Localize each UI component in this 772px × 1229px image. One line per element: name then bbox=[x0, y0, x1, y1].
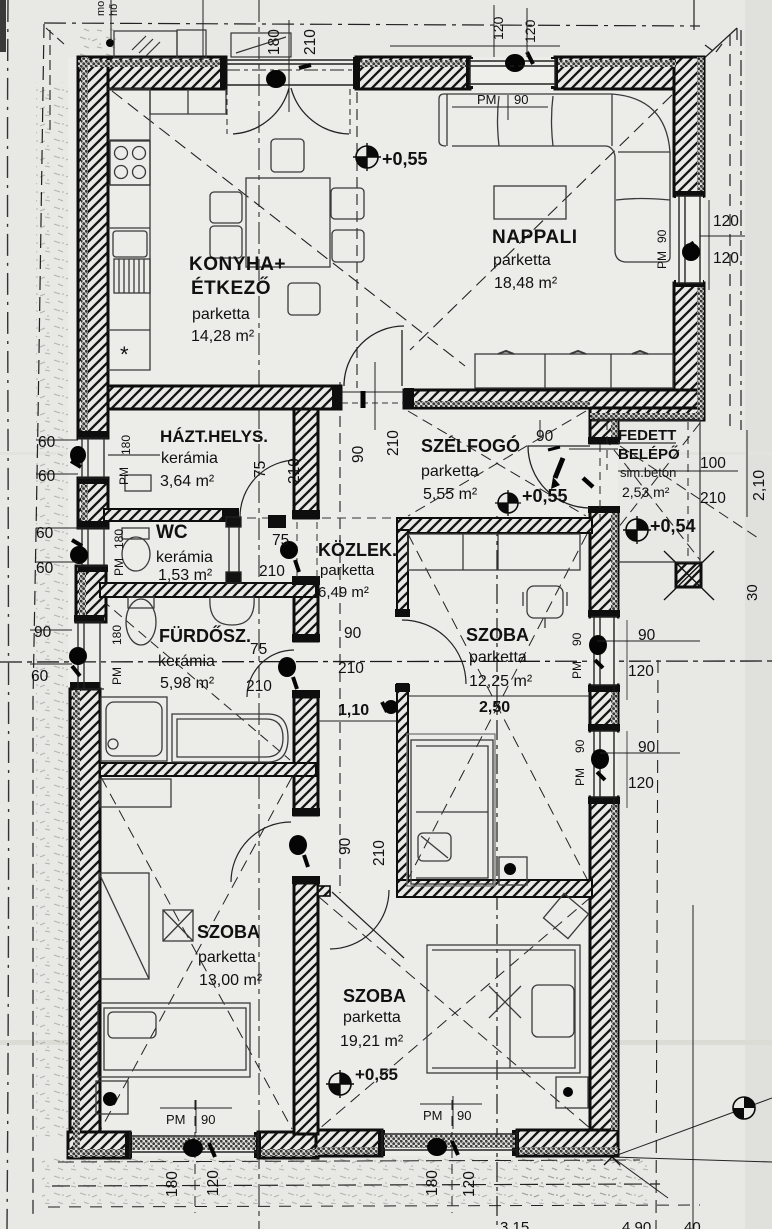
svg-text:90: 90 bbox=[655, 229, 669, 243]
svg-text:PM: PM bbox=[570, 661, 584, 679]
svg-text:SZÉLFOGÓ: SZÉLFOGÓ bbox=[421, 435, 520, 456]
svg-text:KÖZLEK.: KÖZLEK. bbox=[318, 540, 397, 560]
svg-text:1,53 m²: 1,53 m² bbox=[158, 567, 213, 584]
svg-text:FEDETT: FEDETT bbox=[618, 427, 676, 444]
svg-text:180: 180 bbox=[424, 1170, 441, 1196]
svg-text:19,21 m²: 19,21 m² bbox=[340, 1033, 404, 1050]
svg-text:SZOBA: SZOBA bbox=[343, 986, 406, 1006]
svg-text:parketta: parketta bbox=[421, 463, 479, 480]
svg-text:sim.beton: sim.beton bbox=[620, 465, 676, 480]
svg-text:75: 75 bbox=[250, 641, 267, 658]
svg-text:120: 120 bbox=[713, 250, 739, 267]
svg-text:hő: hő bbox=[108, 4, 120, 16]
svg-text:1,10: 1,10 bbox=[338, 702, 369, 719]
svg-text:3,64 m²: 3,64 m² bbox=[160, 473, 215, 490]
svg-text:180: 180 bbox=[112, 529, 126, 549]
svg-text:2,50: 2,50 bbox=[479, 699, 510, 716]
svg-text:*: * bbox=[120, 342, 129, 367]
svg-text:2,53 m²: 2,53 m² bbox=[622, 484, 670, 500]
svg-text:90: 90 bbox=[337, 837, 354, 855]
svg-text:SZOBA: SZOBA bbox=[466, 625, 529, 645]
svg-text:2,10: 2,10 bbox=[751, 470, 768, 501]
svg-text:120: 120 bbox=[713, 213, 739, 230]
svg-text:parketta: parketta bbox=[320, 562, 375, 579]
svg-text:BELÉPŐ: BELÉPŐ bbox=[618, 445, 680, 463]
svg-text:180: 180 bbox=[110, 625, 124, 645]
svg-text:5,98 m²: 5,98 m² bbox=[160, 675, 215, 692]
svg-text:100: 100 bbox=[700, 455, 726, 472]
svg-text:PM: PM bbox=[110, 667, 124, 685]
svg-text:PM: PM bbox=[477, 92, 497, 107]
svg-text:FÜRDŐSZ.: FÜRDŐSZ. bbox=[159, 625, 251, 646]
svg-text:210: 210 bbox=[700, 490, 726, 507]
svg-text:PM: PM bbox=[166, 1112, 186, 1127]
svg-text:SZOBA: SZOBA bbox=[197, 922, 260, 942]
svg-text:+0,55: +0,55 bbox=[355, 1065, 398, 1084]
svg-text:5,55 m²: 5,55 m² bbox=[423, 486, 478, 503]
svg-text:120: 120 bbox=[628, 775, 654, 792]
svg-text:90: 90 bbox=[638, 627, 656, 644]
svg-text:3,15: 3,15 bbox=[500, 1219, 529, 1229]
svg-text:ÉTKEZŐ: ÉTKEZŐ bbox=[191, 277, 271, 299]
svg-text:75: 75 bbox=[252, 461, 269, 478]
svg-text:120: 120 bbox=[490, 16, 506, 40]
svg-text:60: 60 bbox=[36, 525, 54, 542]
svg-text:90: 90 bbox=[570, 632, 584, 646]
svg-text:180: 180 bbox=[119, 435, 133, 455]
svg-text:NAPPALI: NAPPALI bbox=[492, 227, 577, 248]
svg-text:210: 210 bbox=[246, 678, 272, 695]
svg-text:PM: PM bbox=[423, 1108, 443, 1123]
svg-text:PM: PM bbox=[655, 251, 669, 269]
svg-text:90: 90 bbox=[457, 1108, 471, 1123]
svg-text:PM: PM bbox=[117, 467, 131, 485]
svg-text:4,90: 4,90 bbox=[622, 1219, 651, 1229]
svg-text:HÁZT.HELYS.: HÁZT.HELYS. bbox=[160, 427, 268, 446]
svg-text:parketta: parketta bbox=[192, 306, 250, 323]
svg-text:kerámia: kerámia bbox=[156, 549, 213, 566]
svg-text:parketta: parketta bbox=[493, 252, 551, 269]
svg-text:210: 210 bbox=[286, 458, 303, 484]
svg-text:30: 30 bbox=[744, 584, 761, 601]
svg-text:210: 210 bbox=[371, 840, 388, 866]
svg-text:KONYHA+: KONYHA+ bbox=[189, 254, 286, 275]
svg-text:WC: WC bbox=[156, 522, 188, 543]
svg-text:180: 180 bbox=[266, 29, 283, 55]
svg-text:90: 90 bbox=[34, 624, 52, 641]
svg-text:90: 90 bbox=[638, 739, 656, 756]
svg-text:+0,55: +0,55 bbox=[522, 486, 568, 506]
svg-text:90: 90 bbox=[344, 625, 362, 642]
svg-text:90: 90 bbox=[573, 739, 587, 753]
svg-text:180: 180 bbox=[164, 1171, 181, 1197]
svg-text:+0,54: +0,54 bbox=[650, 516, 696, 536]
svg-text:6,49 m²: 6,49 m² bbox=[318, 584, 369, 601]
svg-text:mo: mo bbox=[95, 1, 107, 16]
svg-text:210: 210 bbox=[259, 563, 285, 580]
svg-text:75: 75 bbox=[272, 532, 289, 549]
svg-text:120: 120 bbox=[628, 663, 654, 680]
svg-text:210: 210 bbox=[338, 660, 364, 677]
svg-text:60: 60 bbox=[36, 560, 54, 577]
svg-text:120: 120 bbox=[205, 1170, 222, 1196]
svg-text:parketta: parketta bbox=[469, 649, 527, 666]
svg-text:90: 90 bbox=[350, 445, 367, 463]
svg-text:14,28 m²: 14,28 m² bbox=[191, 328, 255, 345]
svg-text:90: 90 bbox=[201, 1112, 215, 1127]
svg-text:parketta: parketta bbox=[198, 949, 256, 966]
svg-text:210: 210 bbox=[302, 29, 319, 55]
svg-text:60: 60 bbox=[38, 434, 56, 451]
svg-text:18,48 m²: 18,48 m² bbox=[494, 275, 558, 292]
svg-text:kerámia: kerámia bbox=[161, 450, 218, 467]
svg-text:PM: PM bbox=[573, 768, 587, 786]
svg-text:60: 60 bbox=[38, 468, 56, 485]
svg-text:13,00 m²: 13,00 m² bbox=[199, 972, 263, 989]
svg-text:12,25 m²: 12,25 m² bbox=[469, 673, 533, 690]
svg-text:parketta: parketta bbox=[343, 1009, 401, 1026]
svg-text:120: 120 bbox=[522, 19, 538, 43]
svg-text:120: 120 bbox=[461, 1171, 478, 1197]
svg-text:90: 90 bbox=[536, 428, 554, 445]
svg-text:PM: PM bbox=[112, 558, 126, 576]
svg-text:60: 60 bbox=[31, 668, 49, 685]
svg-text:+0,55: +0,55 bbox=[382, 149, 428, 169]
svg-text:kerámia: kerámia bbox=[158, 653, 215, 670]
svg-text:210: 210 bbox=[385, 430, 402, 456]
svg-text:90: 90 bbox=[514, 92, 528, 107]
svg-text:40: 40 bbox=[684, 1219, 701, 1229]
